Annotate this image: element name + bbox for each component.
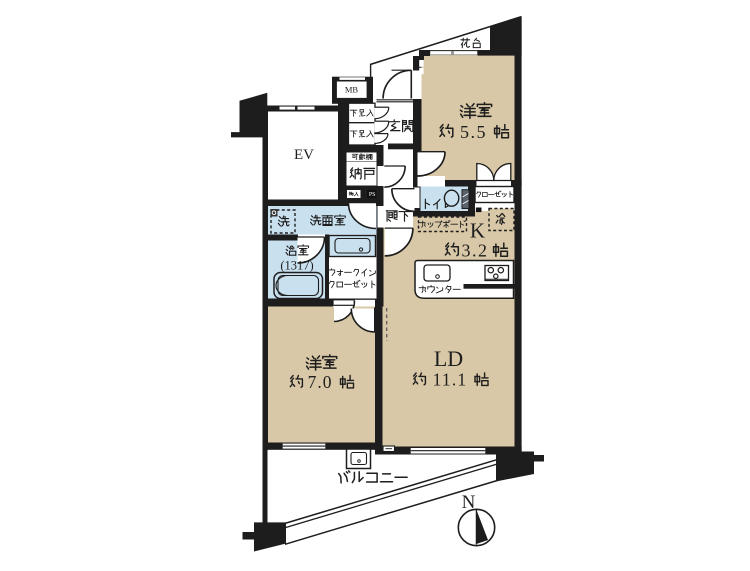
svg-text:7.0: 7.0 [308,372,333,392]
svg-text:11.1: 11.1 [433,370,468,390]
svg-text:K: K [470,218,485,242]
svg-text:PS: PS [369,192,376,198]
svg-text:5.5: 5.5 [460,122,487,142]
svg-text:N: N [462,492,476,513]
svg-text:(1317): (1317) [280,258,313,272]
svg-text:3.2: 3.2 [462,240,489,260]
svg-text:EV: EV [294,147,314,163]
svg-text:MB: MB [345,85,359,95]
svg-text:LD: LD [434,346,463,371]
